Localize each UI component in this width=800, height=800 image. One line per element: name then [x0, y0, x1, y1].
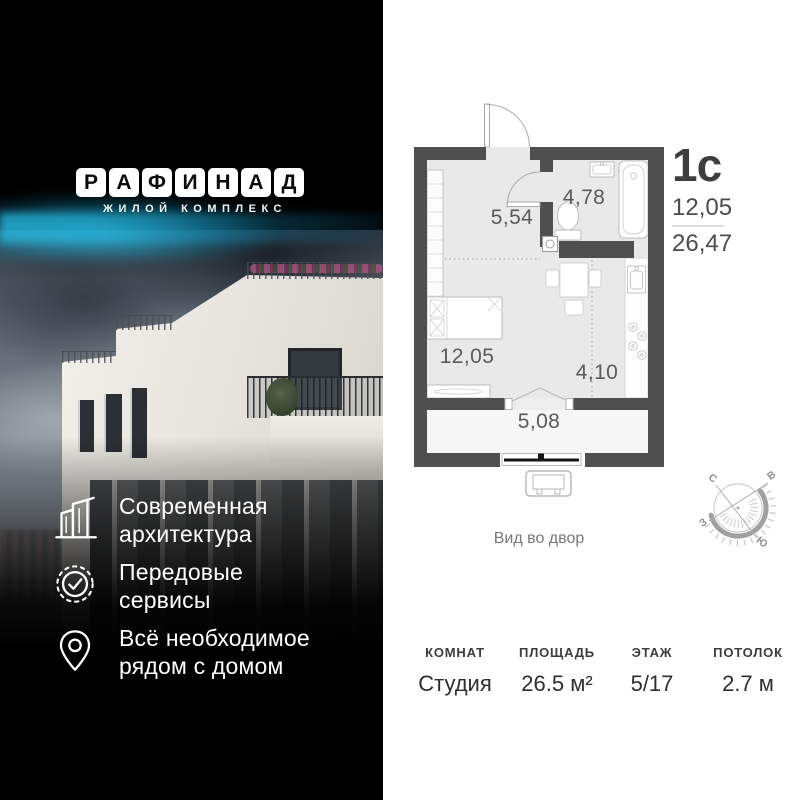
feature-nearby: Всё необходимое рядом с домом: [48, 622, 310, 681]
logo-letter-tile: Д: [274, 168, 304, 197]
view-caption: Вид во двор: [414, 530, 664, 548]
balcony-area-label: 5,08: [518, 410, 560, 434]
feature-line: сервисы: [119, 587, 211, 613]
compass-east-label: В: [765, 468, 779, 482]
total-area-value: 26,47: [672, 231, 782, 257]
feature-modern-architecture: Современная архитектура: [48, 490, 268, 549]
compass-icon: С В З Ю: [696, 468, 796, 568]
compass-north-label: С: [706, 471, 720, 485]
badge-check-icon: [48, 556, 102, 615]
logo-glow-streak: [0, 213, 383, 243]
spec-label: ПОТОЛОК: [678, 645, 800, 660]
unit-type: 1с: [672, 142, 782, 188]
feature-line: Современная: [119, 493, 268, 519]
logo-letter-tile: А: [241, 168, 271, 197]
hallway-area-label: 5,54: [491, 206, 533, 230]
spec-value: 2.7 м: [678, 671, 800, 697]
feature-line: рядом с домом: [119, 653, 284, 679]
spec-ceiling: ПОТОЛОК 2.7 м: [678, 645, 800, 697]
kitchen-area-label: 4,10: [576, 361, 618, 385]
feature-line: архитектура: [119, 521, 252, 547]
logo-letter-tile: И: [175, 168, 205, 197]
feature-services: Передовые сервисы: [48, 556, 243, 615]
feature-line: Передовые: [119, 559, 243, 585]
living-area-value: 12,05: [672, 195, 782, 221]
area-divider: [672, 225, 724, 227]
real-estate-card: Р А Ф И Н А Д ЖИЛОЙ КОМПЛЕКС Современная: [0, 0, 800, 800]
logo-letter-tile: Н: [208, 168, 238, 197]
logo-letter-tile: Ф: [142, 168, 172, 197]
compass-west-label: З: [697, 516, 710, 530]
logo-letter-tile: Р: [76, 168, 106, 197]
left-panel: Р А Ф И Н А Д ЖИЛОЙ КОМПЛЕКС Современная: [0, 0, 383, 800]
feature-line: Всё необходимое: [119, 625, 310, 651]
living-area-label: 12,05: [440, 345, 495, 369]
map-pin-icon: [48, 622, 102, 681]
logo-letter-tile: А: [109, 168, 139, 197]
modern-architecture-icon: [48, 490, 102, 549]
brand-logo: Р А Ф И Н А Д: [76, 168, 304, 197]
unit-info: 1с 12,05 26,47: [672, 142, 782, 258]
bathroom-area-label: 4,78: [563, 186, 605, 210]
floor-plan: [414, 97, 664, 502]
brand-subtitle: ЖИЛОЙ КОМПЛЕКС: [74, 203, 311, 215]
